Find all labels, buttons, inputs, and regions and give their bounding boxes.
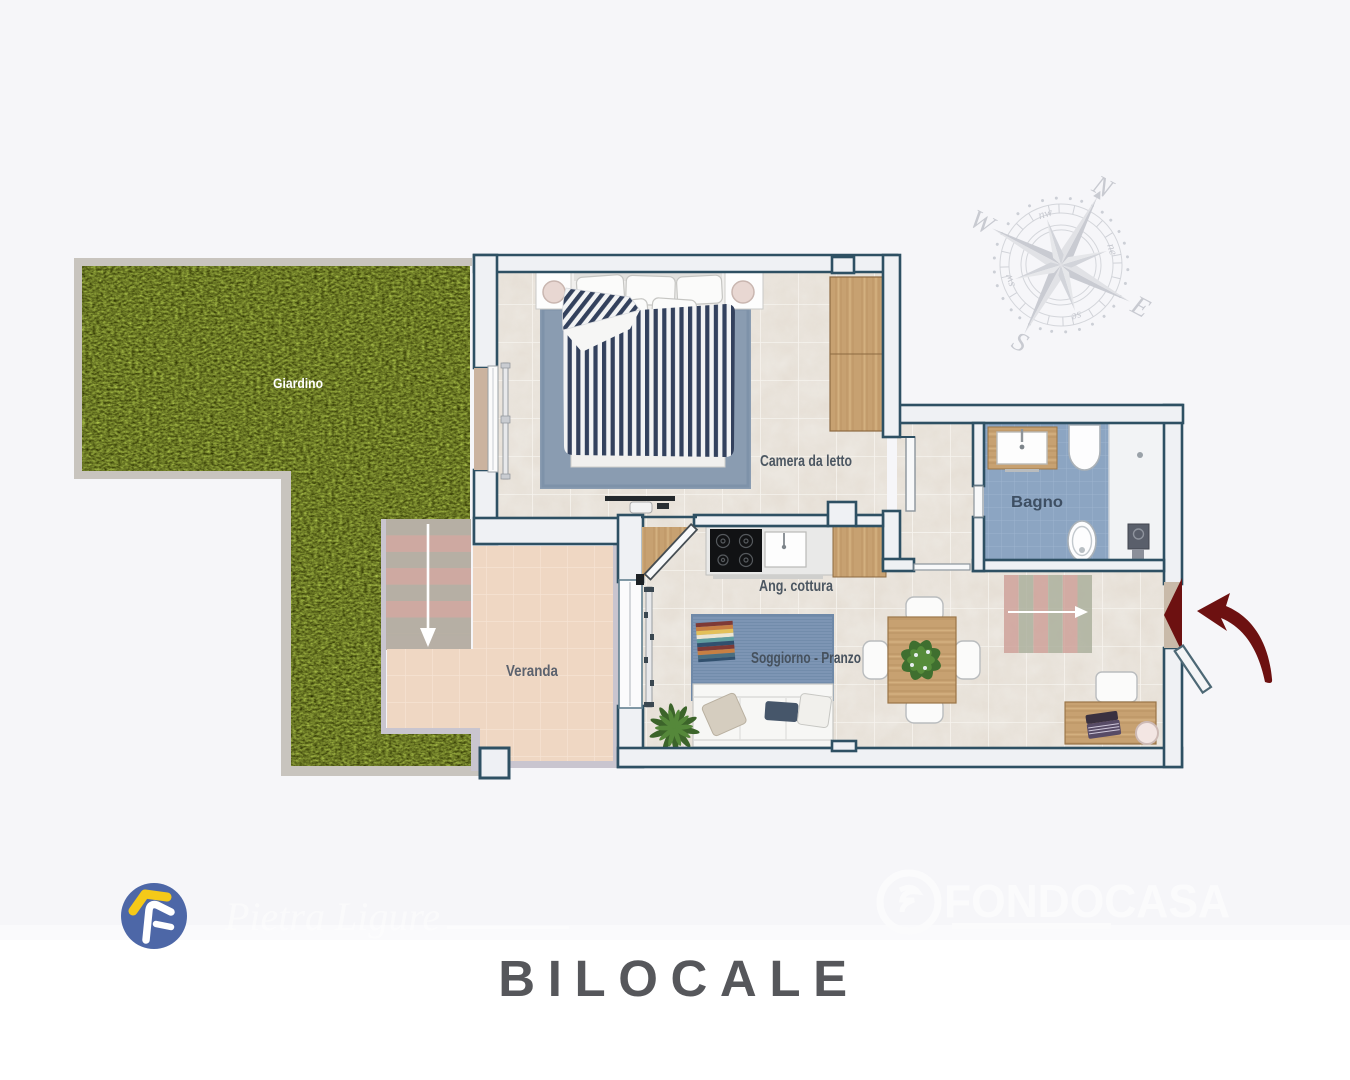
svg-text:Bagno: Bagno <box>1011 494 1063 511</box>
svg-text:BILOCALE: BILOCALE <box>498 950 859 1007</box>
svg-text:Pietra Ligure: Pietra Ligure <box>224 894 440 939</box>
svg-text:Ang. cottura: Ang. cottura <box>759 578 833 595</box>
svg-text:Giardino: Giardino <box>273 375 323 391</box>
svg-text:Camera da letto: Camera da letto <box>760 453 852 470</box>
svg-text:Soggiorno - Pranzo: Soggiorno - Pranzo <box>751 650 861 667</box>
svg-text:FONDOCASA: FONDOCASA <box>944 875 1230 927</box>
svg-text:Veranda: Veranda <box>506 663 558 680</box>
